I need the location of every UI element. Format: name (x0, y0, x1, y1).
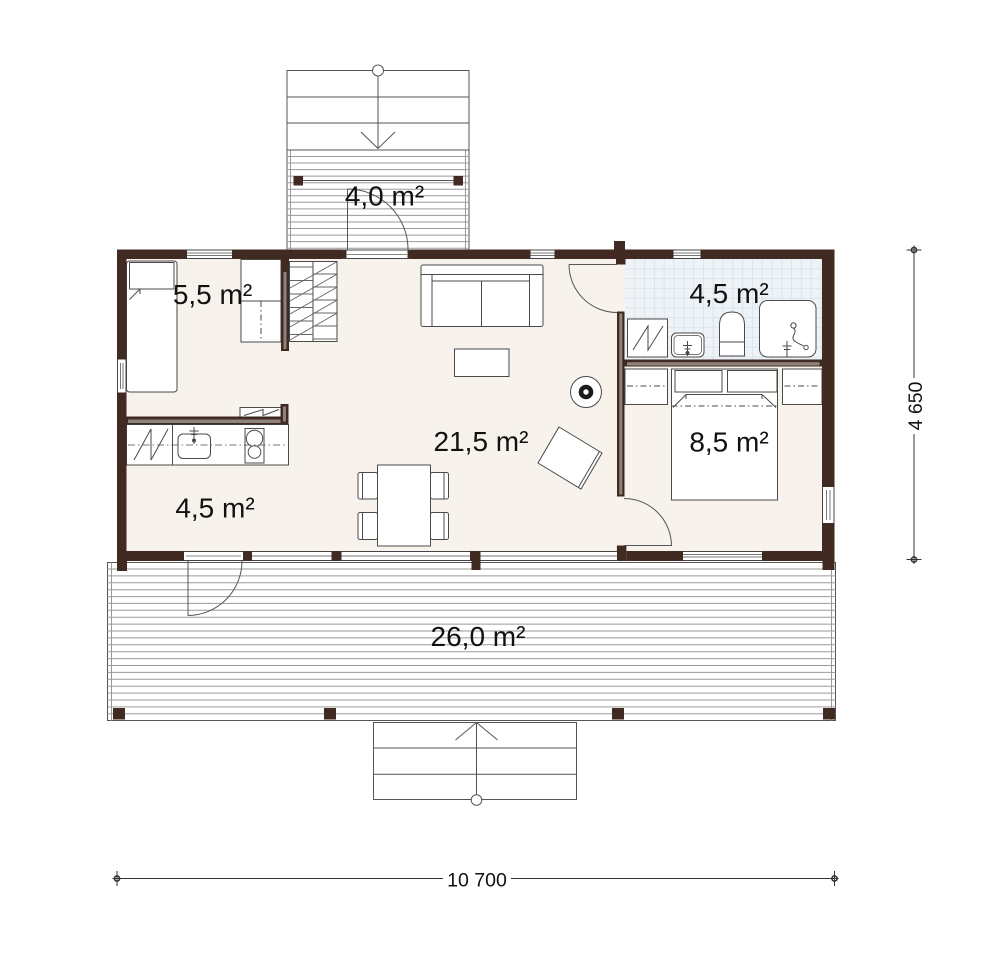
svg-text:4,5 m²: 4,5 m² (175, 493, 254, 524)
svg-text:4 650: 4 650 (905, 381, 927, 430)
svg-text:21,5 m²: 21,5 m² (434, 426, 529, 457)
svg-text:5,5 m²: 5,5 m² (173, 279, 252, 310)
svg-text:8,5 m²: 8,5 m² (689, 427, 768, 458)
svg-text:4,5 m²: 4,5 m² (689, 278, 768, 309)
svg-text:10 700: 10 700 (447, 870, 507, 892)
svg-text:4,0 m²: 4,0 m² (345, 181, 424, 212)
svg-text:26,0 m²: 26,0 m² (431, 621, 526, 652)
